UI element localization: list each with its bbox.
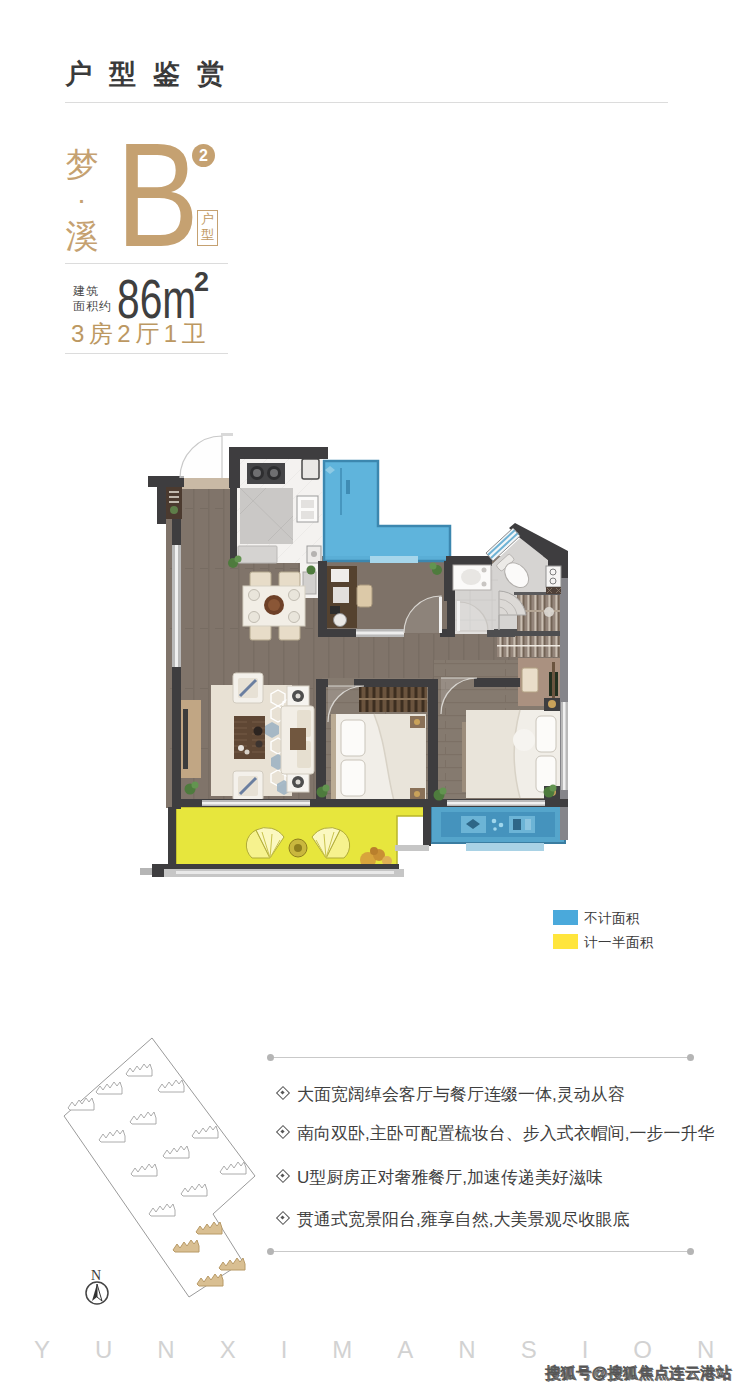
svg-text:N: N <box>91 1268 101 1283</box>
